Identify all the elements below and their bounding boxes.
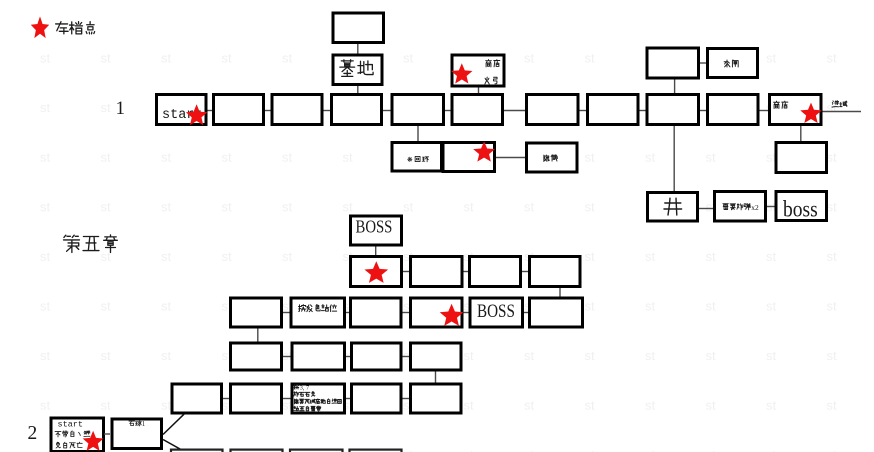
svg-text:BOSS: BOSS (477, 301, 515, 322)
svg-text:1: 1 (142, 420, 146, 428)
svg-text:start: start (58, 419, 84, 429)
svg-text:BOSS: BOSS (356, 216, 393, 237)
svg-text:boss: boss (783, 196, 818, 222)
svg-text:x2: x2 (751, 203, 759, 212)
svg-text:2: 2 (28, 423, 38, 444)
svg-text:3, 7: 3, 7 (300, 384, 309, 391)
svg-text:1: 1 (116, 98, 126, 119)
